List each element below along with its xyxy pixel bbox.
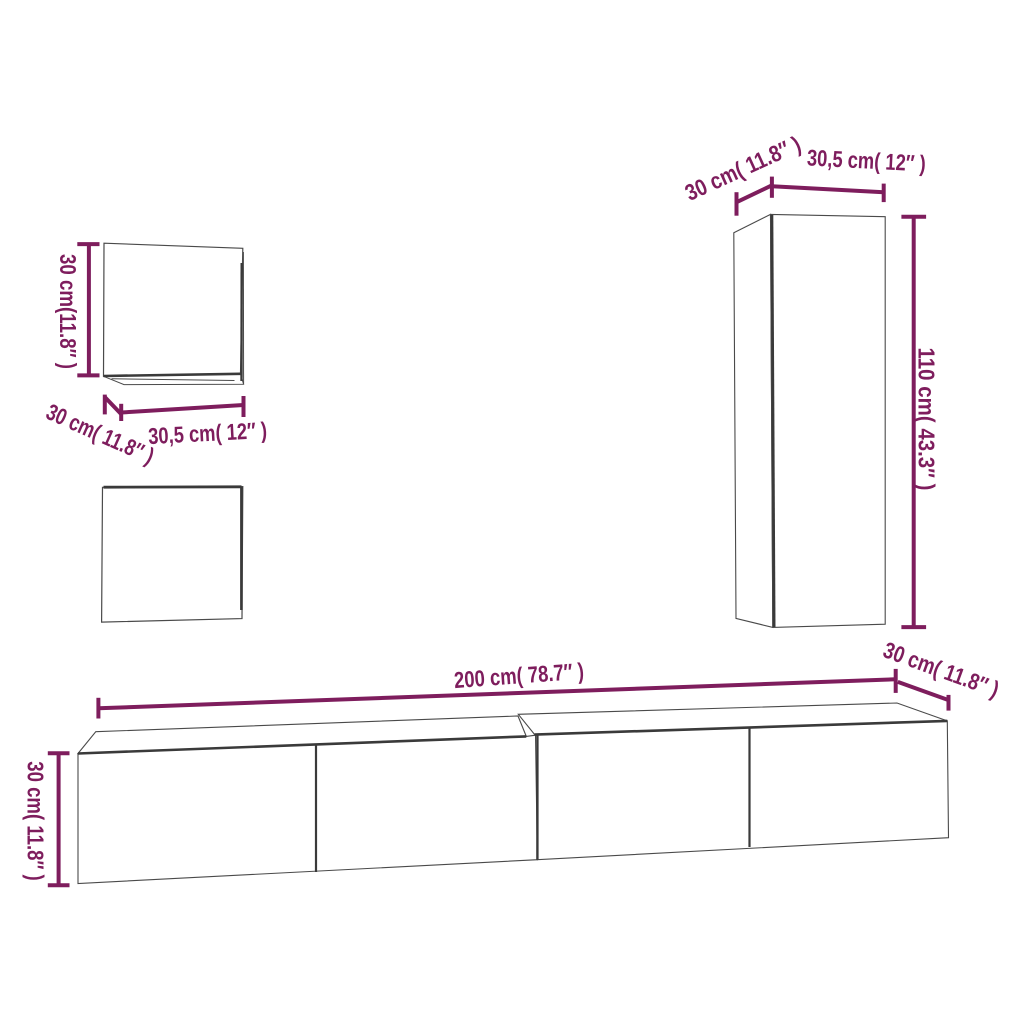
svg-text:110 cm( 43.3″ ): 110 cm( 43.3″ ) (914, 348, 940, 491)
svg-text:30 cm(11.8″ ): 30 cm(11.8″ ) (55, 254, 81, 369)
svg-text:30 cm( 11.8″ ): 30 cm( 11.8″ ) (23, 761, 49, 881)
